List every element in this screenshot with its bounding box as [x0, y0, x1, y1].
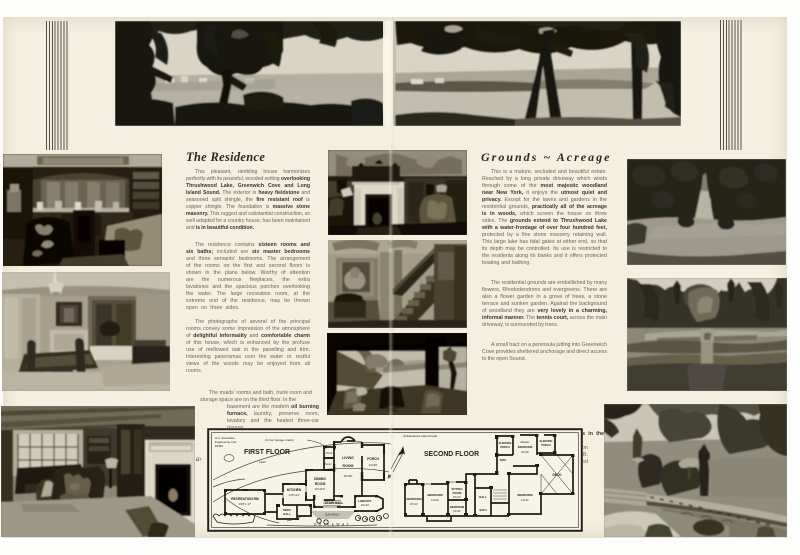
svg-text:RECREATION RM: RECREATION RM — [231, 497, 259, 501]
svg-text:14'6"x13': 14'6"x13' — [289, 493, 300, 497]
svg-text:#4460: #4460 — [215, 444, 223, 448]
svg-text:BEDROOM: BEDROOM — [406, 497, 422, 501]
svg-text:Lawn: Lawn — [259, 460, 266, 464]
svg-text:STAIR HALL: STAIR HALL — [325, 501, 344, 505]
svg-text:Porch: Porch — [326, 452, 333, 455]
svg-text:KITCHEN: KITCHEN — [287, 488, 302, 492]
svg-text:19'x36': 19'x36' — [344, 474, 353, 478]
svg-text:LIBRARY: LIBRARY — [358, 499, 371, 503]
svg-text:All Elevations Approximate: All Elevations Approximate — [402, 434, 438, 438]
svg-text:14'x28': 14'x28' — [369, 463, 378, 467]
svg-text:HALL: HALL — [283, 512, 291, 516]
svg-text:16'x19': 16'x19' — [521, 451, 529, 454]
svg-text:Master: Master — [520, 440, 530, 444]
svg-text:FIRST FLOOR: FIRST FLOOR — [244, 449, 290, 456]
svg-text:PORCH: PORCH — [541, 443, 550, 447]
svg-text:DINING: DINING — [314, 477, 326, 481]
svg-text:HALL: HALL — [479, 495, 487, 499]
svg-text:PORCH: PORCH — [367, 457, 379, 461]
svg-text:23'6"x 17': 23'6"x 17' — [239, 502, 252, 506]
svg-text:19'x10': 19'x10' — [361, 503, 370, 507]
svg-text:BEDROOM: BEDROOM — [427, 493, 443, 497]
svg-text:15'x13': 15'x13' — [453, 496, 461, 499]
svg-text:(3-Car Garage under): (3-Car Garage under) — [265, 438, 294, 442]
svg-text:14'x14': 14'x14' — [431, 499, 439, 502]
svg-text:19'x16'6": 19'x16'6" — [315, 487, 326, 491]
svg-text:ROOM: ROOM — [453, 491, 462, 495]
svg-text:SLEEPING: SLEEPING — [498, 441, 511, 445]
svg-text:ROOM: ROOM — [343, 464, 354, 468]
svg-text:Pantry: Pantry — [324, 463, 332, 466]
svg-text:SUN PORCH: SUN PORCH — [325, 514, 340, 517]
svg-text:14'x14': 14'x14' — [521, 499, 529, 502]
svg-text:13'x11': 13'x11' — [453, 510, 461, 513]
svg-text:SECOND FLOOR: SECOND FLOOR — [424, 451, 479, 458]
svg-text:BATH: BATH — [500, 459, 507, 462]
svg-text:BATH: BATH — [479, 508, 486, 512]
svg-text:15'x14': 15'x14' — [410, 503, 418, 506]
svg-text:BEDROOM: BEDROOM — [450, 505, 465, 509]
svg-text:ROOM: ROOM — [315, 482, 326, 486]
svg-text:BEDROOM: BEDROOM — [518, 445, 533, 449]
svg-text:SLEEPING: SLEEPING — [539, 439, 552, 443]
svg-text:BEDROOM: BEDROOM — [517, 493, 533, 497]
svg-text:DECK: DECK — [552, 473, 562, 477]
svg-text:PORCH: PORCH — [500, 445, 509, 449]
svg-text:LIVING: LIVING — [342, 456, 354, 460]
